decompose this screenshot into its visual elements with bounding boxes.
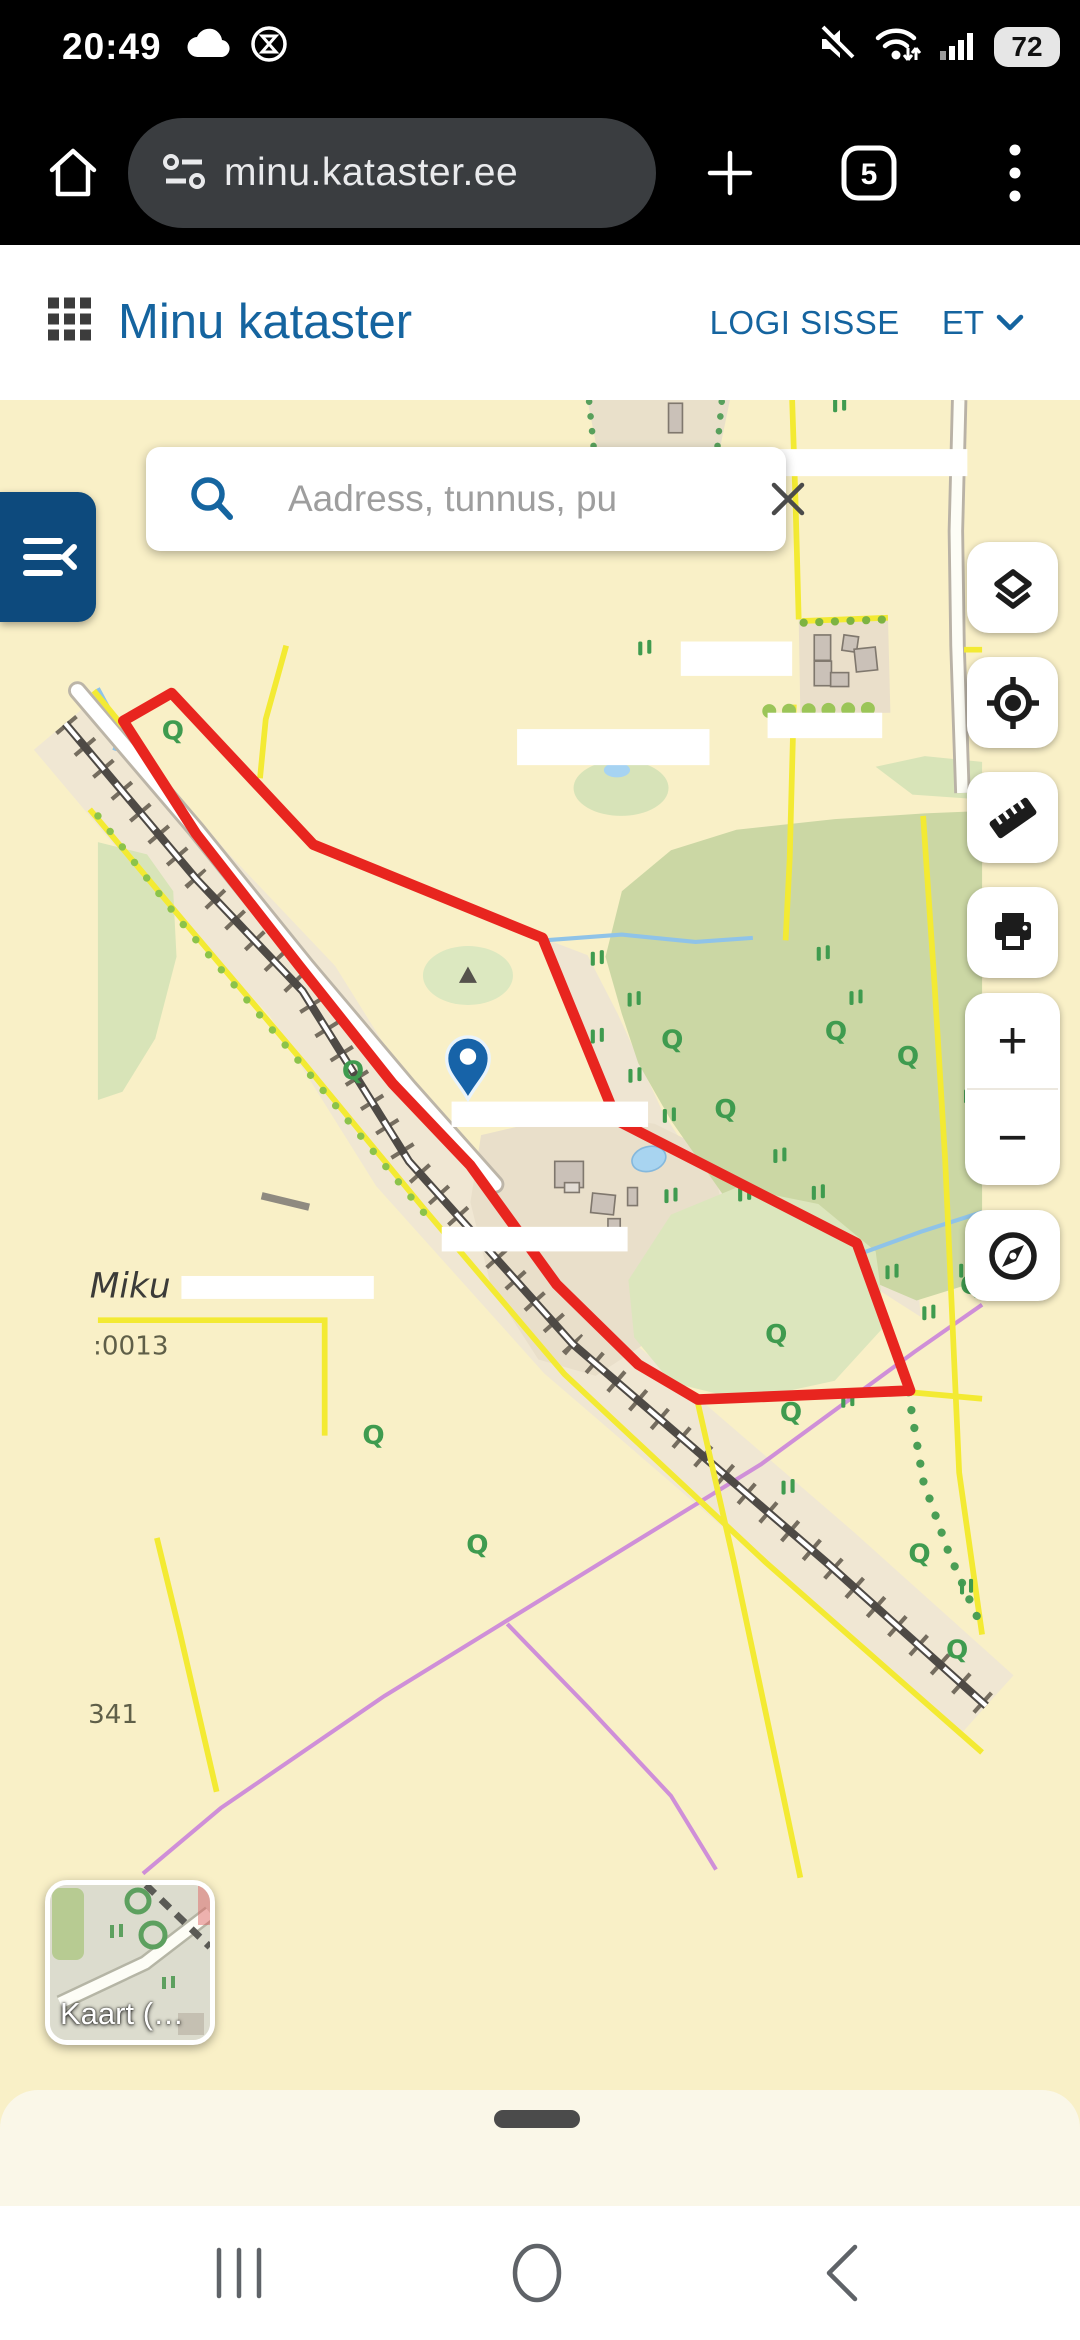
url-bar[interactable]: minu.kataster.ee — [128, 118, 656, 228]
svg-text:Q: Q — [162, 717, 184, 747]
system-nav-bar — [0, 2206, 1080, 2340]
svg-text:Q: Q — [908, 1540, 930, 1570]
svg-text:Q: Q — [765, 1320, 787, 1350]
tab-switcher-button[interactable]: 5 — [826, 100, 912, 245]
url-text: minu.kataster.ee — [224, 151, 518, 195]
measure-button[interactable] — [967, 772, 1058, 863]
search-icon — [186, 473, 238, 525]
language-selector[interactable]: ET — [942, 304, 1024, 342]
side-panel-toggle[interactable] — [0, 492, 96, 622]
compass-button[interactable] — [965, 1210, 1060, 1301]
map-canvas[interactable]: QQ QQ QQ QQ QQ QQ Q — [0, 400, 1080, 2206]
layers-icon — [987, 562, 1039, 614]
layers-button[interactable] — [967, 542, 1058, 633]
page-title[interactable]: Minu kataster — [118, 293, 412, 349]
battery-icon: 72 — [994, 27, 1060, 67]
printer-icon — [987, 907, 1039, 959]
svg-text:Q: Q — [714, 1095, 736, 1125]
home-button[interactable] — [38, 100, 108, 245]
clear-search-icon[interactable] — [766, 477, 810, 521]
recents-button[interactable] — [179, 2206, 299, 2340]
compass-icon — [985, 1228, 1041, 1284]
zoom-in-button[interactable]: + — [965, 993, 1060, 1088]
print-button[interactable] — [967, 887, 1058, 978]
my-location-icon — [985, 675, 1041, 731]
svg-text:Q: Q — [897, 1042, 919, 1072]
map-label-parcel: :0013 — [93, 1332, 168, 1362]
svg-text:Q: Q — [466, 1531, 488, 1561]
signal-icon — [938, 23, 980, 70]
language-value: ET — [942, 304, 984, 342]
chevron-down-icon — [996, 314, 1024, 332]
app-header: Minu kataster LOGI SISSE ET — [0, 245, 1080, 400]
location-pin-icon — [447, 1037, 490, 1099]
status-bar: 20:49 72 — [0, 0, 1080, 100]
svg-text:Q: Q — [661, 1025, 683, 1055]
recents-icon — [211, 2245, 267, 2301]
map-label-parcel2: 341 — [88, 1700, 138, 1730]
home-nav-button[interactable] — [477, 2206, 597, 2340]
cloud-icon — [185, 27, 231, 66]
bottom-sheet[interactable] — [0, 2090, 1080, 2206]
green-left — [98, 842, 177, 1100]
apps-grid-button[interactable] — [48, 297, 94, 348]
sheet-drag-handle[interactable] — [494, 2110, 580, 2128]
wifi-icon — [872, 22, 924, 71]
menu-kebab-icon[interactable] — [975, 100, 1055, 245]
svg-text:Q: Q — [780, 1398, 802, 1428]
map-label-farm: Miku — [90, 1266, 171, 1306]
login-link[interactable]: LOGI SISSE — [710, 304, 900, 342]
ruler-icon — [985, 790, 1041, 846]
collapse-panel-icon — [18, 533, 78, 581]
svg-text:5: 5 — [861, 158, 878, 191]
svg-text:Q: Q — [825, 1017, 847, 1047]
zoom-control: + − — [965, 993, 1060, 1185]
mute-icon — [814, 22, 858, 71]
home-nav-icon — [509, 2241, 565, 2305]
back-icon — [821, 2241, 865, 2305]
search-bar[interactable] — [146, 447, 786, 551]
site-settings-icon[interactable] — [160, 149, 210, 198]
phone-screen: 20:49 72 — [0, 0, 1080, 2340]
data-saver-icon — [249, 24, 289, 69]
svg-text:Q: Q — [342, 1057, 364, 1087]
clock: 20:49 — [62, 26, 162, 68]
my-location-button[interactable] — [967, 657, 1058, 748]
search-input[interactable] — [286, 477, 766, 521]
svg-text:Q: Q — [946, 1635, 968, 1665]
basemap-label: Kaart (… — [60, 1996, 184, 2032]
new-tab-button[interactable] — [690, 100, 770, 245]
browser-toolbar: minu.kataster.ee 5 — [0, 100, 1080, 245]
svg-text:Q: Q — [362, 1421, 384, 1451]
zoom-out-button[interactable]: − — [965, 1090, 1060, 1185]
back-button[interactable] — [783, 2206, 903, 2340]
basemap-switcher[interactable]: Kaart (… — [45, 1880, 215, 2045]
